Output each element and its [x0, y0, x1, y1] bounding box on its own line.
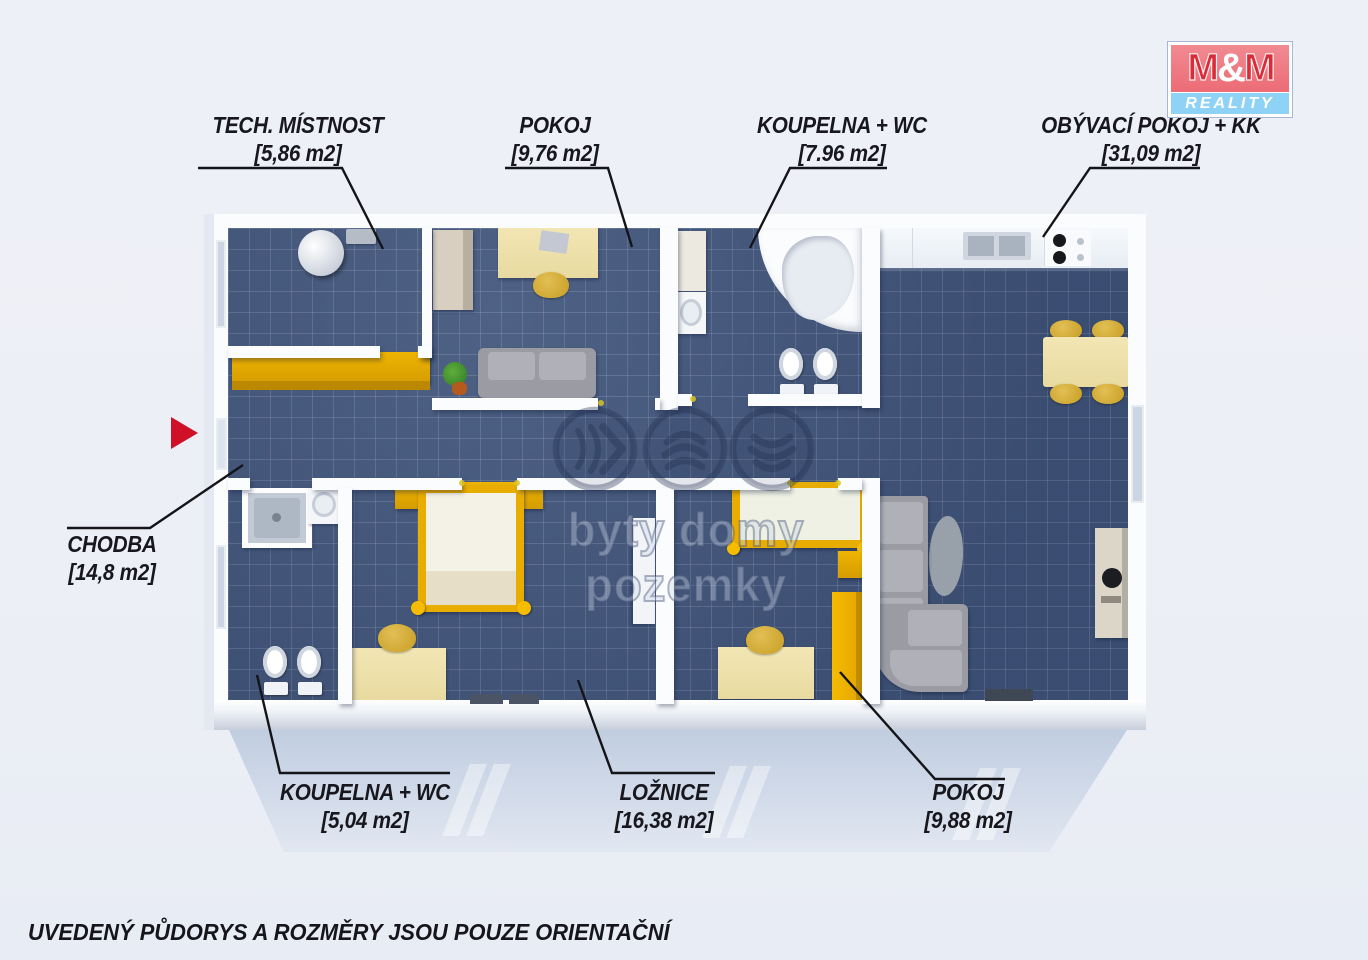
sink-basin	[680, 299, 702, 326]
logo-ampersand: &	[1216, 46, 1244, 91]
window-slit	[470, 694, 503, 704]
entry-door	[216, 418, 227, 470]
room-name: KOUPELNA + WC	[752, 112, 932, 140]
room-name: POKOJ	[465, 112, 645, 140]
fireplace	[1095, 528, 1131, 638]
wall	[228, 478, 250, 490]
door-hinge	[787, 480, 793, 486]
wall	[338, 488, 352, 704]
wall	[517, 478, 790, 490]
boiler	[298, 230, 344, 276]
label-obyvaci: OBÝVACÍ POKOJ + KK [31,09 m2]	[1034, 112, 1268, 167]
room-name: KOUPELNA + WC	[275, 779, 455, 807]
dining-chair	[1050, 384, 1082, 404]
door-hinge	[690, 396, 696, 402]
wall	[748, 394, 864, 406]
label-koupelna-bottom: KOUPELNA + WC [5,04 m2]	[275, 779, 455, 834]
room-area: [5,86 m2]	[190, 140, 406, 168]
door-hinge	[514, 480, 520, 486]
wall	[214, 700, 1146, 730]
door-hinge	[459, 480, 465, 486]
dining-chair	[1092, 384, 1124, 404]
wall	[655, 398, 660, 410]
room-area: [14,8 m2]	[22, 559, 202, 587]
desk	[352, 648, 446, 700]
wall	[432, 398, 598, 410]
stove	[1044, 230, 1091, 266]
room-area: [7.96 m2]	[752, 140, 932, 168]
watermark-text: byty domy pozemky	[465, 502, 907, 612]
logo-tagline: REALITY	[1171, 93, 1289, 114]
logo-m: M	[1244, 47, 1273, 90]
laptop	[539, 230, 570, 254]
label-koupelna-top: KOUPELNA + WC [7.96 m2]	[752, 112, 932, 167]
window	[216, 240, 226, 328]
wall	[862, 228, 880, 408]
wall-unit	[346, 229, 376, 244]
corner-sofa-seat	[874, 604, 968, 692]
mm-reality-logo: M&M REALITY	[1167, 41, 1293, 118]
plant-pot	[452, 382, 467, 395]
room-area: [9,88 m2]	[878, 807, 1058, 835]
wall	[838, 478, 862, 490]
wall	[422, 228, 432, 358]
sofa	[478, 348, 596, 398]
window-slit	[509, 694, 539, 704]
entrance-arrow-icon	[171, 417, 198, 449]
wall	[418, 346, 432, 358]
label-loznice: LOŽNICE [16,38 m2]	[574, 779, 754, 834]
door-hinge	[835, 480, 841, 486]
floor-mat	[985, 689, 1033, 701]
sink-basin	[312, 492, 336, 517]
desk-chair	[746, 626, 784, 654]
disclaimer-text: UVEDENÝ PŮDORYS A ROZMĚRY JSOU POUZE ORI…	[28, 919, 670, 946]
wall	[228, 346, 380, 358]
counter-divider	[912, 228, 913, 268]
wall	[312, 478, 462, 490]
floorplan-page: byty domy pozemky TECH. MÍSTNOST [5,86 m…	[0, 0, 1368, 960]
room-name: LOŽNICE	[574, 779, 754, 807]
window	[1131, 405, 1144, 503]
bed-post	[411, 601, 425, 615]
room-area: [16,38 m2]	[574, 807, 754, 835]
room-name: TECH. MÍSTNOST	[190, 112, 406, 140]
desk	[718, 647, 814, 699]
desk-chair	[533, 272, 569, 298]
desk-chair	[378, 624, 416, 652]
kitchen-sink	[963, 232, 1031, 260]
logo-top: M&M	[1171, 45, 1289, 92]
wall	[214, 214, 1146, 228]
bath-cabinet	[676, 231, 706, 291]
room-area: [9,76 m2]	[465, 140, 645, 168]
wall	[660, 228, 678, 410]
room-name: POKOJ	[878, 779, 1058, 807]
room-area: [31,09 m2]	[1034, 140, 1268, 168]
label-chodba: CHODBA [14,8 m2]	[22, 531, 202, 586]
label-pokoj-bottom: POKOJ [9,88 m2]	[878, 779, 1058, 834]
room-name: CHODBA	[22, 531, 202, 559]
shower	[242, 488, 312, 548]
room-area: [5,04 m2]	[275, 807, 455, 835]
window	[216, 545, 226, 629]
label-tech-mistnost: TECH. MÍSTNOST [5,86 m2]	[190, 112, 406, 167]
cabinet-side	[463, 230, 473, 310]
label-pokoj-top: POKOJ [9,76 m2]	[465, 112, 645, 167]
dining-table	[1043, 337, 1129, 387]
door-hinge	[598, 400, 604, 406]
logo-m: M	[1187, 47, 1216, 90]
sideboard-front	[232, 381, 430, 390]
